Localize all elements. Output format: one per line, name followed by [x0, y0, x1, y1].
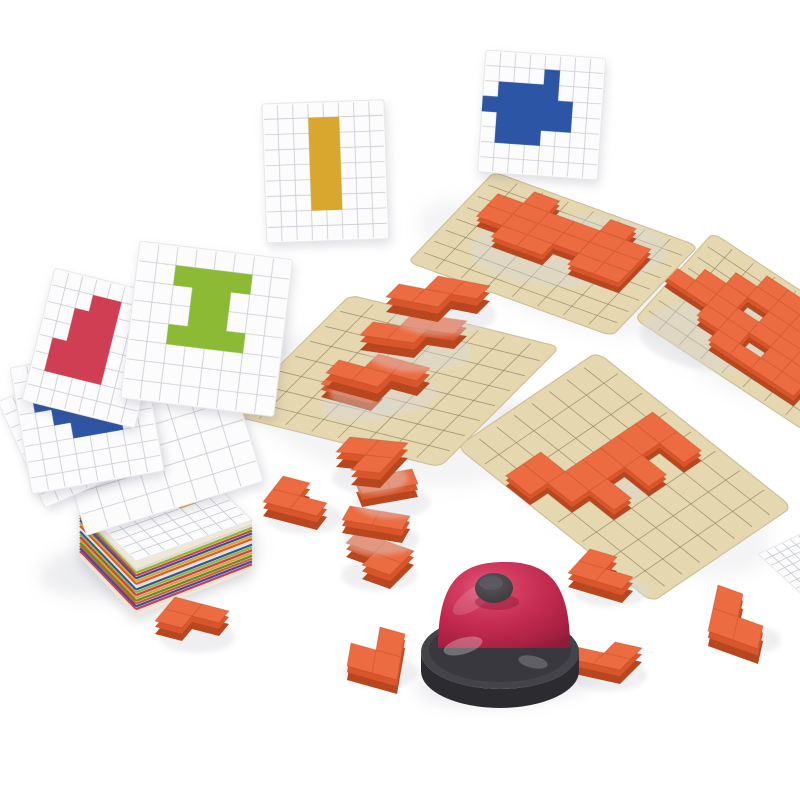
pattern-pixel	[212, 270, 234, 292]
pattern-pixel	[496, 112, 512, 129]
pattern-pixel	[223, 331, 245, 353]
pattern-pixel	[541, 115, 557, 132]
pattern-pixel	[71, 419, 91, 438]
pattern-pixel	[495, 127, 511, 144]
pattern-pixel	[311, 194, 327, 210]
pattern-pixel	[524, 129, 540, 146]
pattern-pixel	[526, 114, 542, 131]
scene-illustration	[0, 0, 800, 800]
pattern-pixel	[557, 101, 573, 118]
pattern-pixel	[207, 309, 229, 331]
pattern-pixel	[510, 128, 526, 145]
pattern-pixel	[513, 83, 529, 100]
pattern-pixel	[309, 148, 325, 164]
pattern-pixel	[308, 117, 324, 133]
pattern-pixel	[204, 329, 226, 351]
pattern-pixel	[209, 290, 231, 312]
pattern-pixel	[498, 81, 514, 98]
pattern-pixel	[482, 96, 498, 113]
pattern-card-yellow	[262, 100, 389, 243]
pattern-pixel	[310, 164, 326, 180]
pattern-pixel	[544, 69, 560, 86]
pattern-pixel	[542, 100, 558, 117]
pattern-pixel	[326, 179, 342, 195]
pattern-pixel	[192, 268, 214, 290]
pattern-pixel	[497, 97, 513, 114]
pattern-pixel	[188, 307, 210, 329]
pattern-pixel	[555, 116, 571, 133]
pattern-pixel	[511, 113, 527, 130]
pattern-pixel	[166, 324, 188, 346]
product-photo-stage	[0, 0, 800, 800]
pattern-pixel	[231, 272, 253, 294]
pattern-pixel	[325, 163, 341, 179]
pattern-pixel	[324, 132, 340, 148]
pattern-pixel	[173, 265, 195, 287]
pattern-pixel	[324, 117, 340, 133]
bell-knob-highlight	[479, 576, 503, 590]
pattern-card-green	[121, 241, 293, 417]
pattern-pixel	[527, 99, 543, 116]
pattern-pixel	[326, 194, 342, 210]
pattern-pixel	[310, 179, 326, 195]
pattern-pixel	[543, 85, 559, 102]
pattern-pixel	[528, 84, 544, 101]
pattern-card-blue	[477, 50, 605, 180]
pattern-pixel	[325, 148, 341, 164]
pattern-pixel	[309, 133, 325, 149]
pattern-pixel	[185, 326, 207, 348]
pattern-pixel	[190, 287, 212, 309]
pattern-pixel	[512, 98, 528, 115]
